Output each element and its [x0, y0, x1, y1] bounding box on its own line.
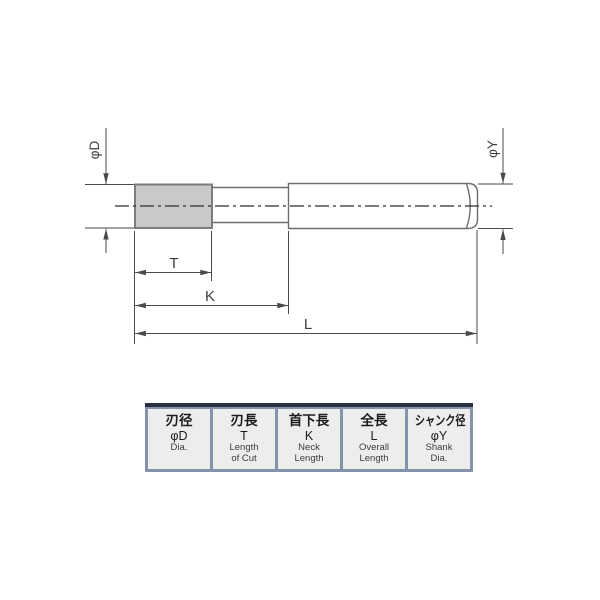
shank-diameter-label: φY: [485, 140, 500, 158]
spec-jp-label: 刃径: [148, 413, 210, 429]
spec-jp-label: シャンク径: [415, 413, 463, 429]
spec-cell-shank-dia: シャンク径 φY Shank Dia.: [408, 409, 470, 469]
spec-cell-neck-length: 首下長 K Neck Length: [278, 409, 340, 469]
spec-cell-overall-length: 全長 L Overall Length: [343, 409, 405, 469]
drawing-canvas: φD φY T K L: [0, 0, 600, 600]
spec-en-line: Length: [278, 454, 340, 465]
spec-jp-label: 首下長: [278, 413, 340, 429]
spec-en-line: Overall: [343, 443, 405, 454]
spec-en-line: Neck: [278, 443, 340, 454]
spec-en-line: Length: [343, 454, 405, 465]
dim-length-of-cut: T: [135, 255, 211, 273]
length-of-cut-label: T: [169, 255, 178, 272]
spec-jp-label: 刃長: [213, 413, 275, 429]
spec-table: 刃径 φD Dia. 刃長 T Length of Cut 首下長 K Neck…: [145, 403, 473, 472]
neck-length-label: K: [205, 288, 215, 305]
dim-overall-length: L: [135, 316, 476, 334]
cut-diameter-label: φD: [87, 141, 102, 160]
overall-length-label: L: [304, 316, 312, 333]
spec-table-row: 刃径 φD Dia. 刃長 T Length of Cut 首下長 K Neck…: [148, 409, 470, 469]
dim-cut-diameter: φD: [85, 128, 134, 253]
spec-jp-label: 全長: [343, 413, 405, 429]
spec-cell-length-of-cut: 刃長 T Length of Cut: [213, 409, 275, 469]
spec-en-line: of Cut: [213, 454, 275, 465]
spec-cell-dia: 刃径 φD Dia.: [148, 409, 210, 469]
dim-shank-diameter: φY: [478, 128, 513, 254]
spec-en-line: Length: [213, 443, 275, 454]
dim-neck-length: K: [135, 288, 288, 306]
spec-en-line: Dia.: [148, 443, 210, 454]
spec-en-line: Dia.: [408, 454, 470, 465]
spec-en-line: Shank: [408, 443, 470, 454]
tool-diagram: φD φY T K L: [0, 0, 600, 600]
